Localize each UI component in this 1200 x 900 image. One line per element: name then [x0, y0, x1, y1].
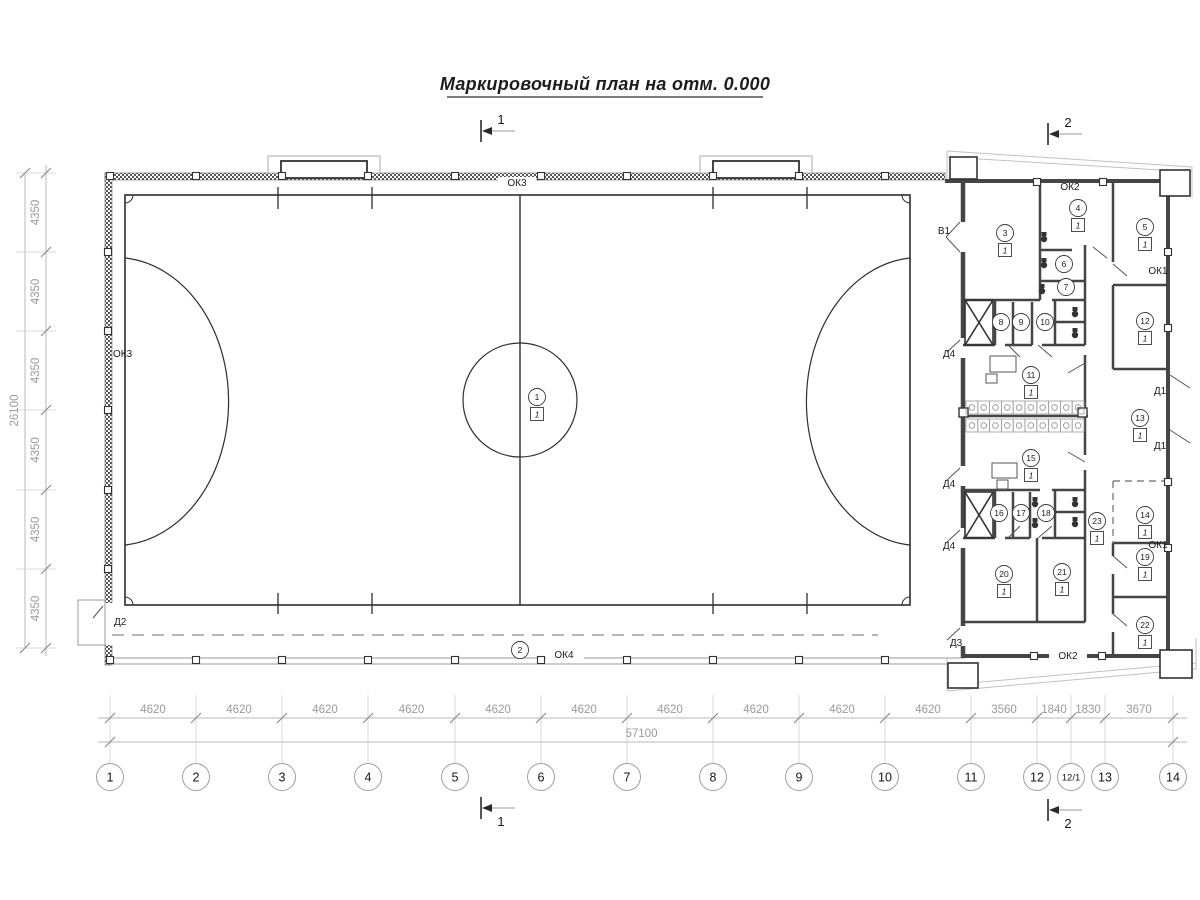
- dim-total-value: 57100: [626, 728, 658, 740]
- dim-value: 4350: [30, 279, 42, 305]
- room-number: 10: [1040, 317, 1050, 327]
- floor-type-mark: 1: [1060, 585, 1065, 595]
- grid-axis-bubble: 13: [1092, 764, 1119, 791]
- floor-type-mark: 1: [1029, 471, 1034, 481]
- room-label: 221: [1137, 617, 1154, 649]
- locker-cell: [1072, 419, 1084, 432]
- locker-cell-mark: [1064, 405, 1070, 411]
- room-label: 8: [993, 314, 1010, 331]
- locker-cell-mark: [969, 423, 975, 429]
- column-marker: [882, 657, 889, 664]
- dim-value: 4350: [30, 437, 42, 463]
- dim-value: 1840: [1041, 704, 1067, 716]
- wall-label-ок4: ОК4: [554, 650, 574, 661]
- grid-axis-number: 12/1: [1062, 773, 1081, 784]
- room-number: 21: [1057, 567, 1067, 577]
- floor-type-mark: 1: [1029, 388, 1034, 398]
- dim-value: 1830: [1075, 704, 1101, 716]
- room-number: 11: [1027, 370, 1036, 380]
- left-window-band: [105, 173, 112, 665]
- locker-cell-mark: [993, 423, 999, 429]
- grid-axis-bubble: 11: [958, 764, 985, 791]
- room-label: 41: [1070, 200, 1087, 232]
- desk: [992, 463, 1017, 478]
- column-marker: [279, 173, 286, 180]
- grid-axis-number: 1: [107, 771, 114, 785]
- section-marker: 1: [481, 797, 515, 829]
- locker-cell-mark: [1005, 405, 1011, 411]
- section-number: 2: [1064, 115, 1071, 130]
- room-number: 6: [1062, 259, 1067, 269]
- column-marker: [624, 657, 631, 664]
- room-number: 16: [994, 508, 1004, 518]
- floor-type-mark: 1: [1003, 246, 1008, 256]
- grid-axis-number: 4: [365, 771, 372, 785]
- locker-cell: [1037, 419, 1049, 432]
- locker-cell-mark: [1040, 405, 1046, 411]
- column-marker: [105, 487, 112, 494]
- room-label: 201: [996, 566, 1013, 598]
- wall-label-ок3: ОК3: [507, 178, 527, 189]
- column-marker: [105, 407, 112, 414]
- dim-value: 4620: [571, 704, 597, 716]
- room-number: 3: [1003, 228, 1008, 238]
- entry-porch-d2: [78, 600, 105, 645]
- locker-cell-mark: [1052, 405, 1058, 411]
- dim-value: 4350: [30, 596, 42, 622]
- room-label: 51: [1137, 219, 1154, 251]
- room-number: 5: [1143, 222, 1148, 232]
- dim-value: 4620: [915, 704, 941, 716]
- floor-type-mark: 1: [1002, 587, 1007, 597]
- dim-value: 4620: [743, 704, 769, 716]
- wall-label-д4: Д4: [943, 479, 956, 490]
- floor-type-mark: 1: [1143, 638, 1148, 648]
- locker-cell: [1001, 419, 1013, 432]
- column-marker: [365, 173, 372, 180]
- column-marker: [796, 173, 803, 180]
- room-label: 7: [1058, 279, 1075, 296]
- room-label: 111: [1023, 367, 1040, 399]
- column-marker: [452, 657, 459, 664]
- column-marker: [1100, 179, 1107, 186]
- grid-axis-bubble: 8: [700, 764, 727, 791]
- dim-value: 4350: [30, 517, 42, 543]
- wall-label-в1: В1: [938, 226, 951, 237]
- room-number: 14: [1140, 510, 1150, 520]
- locker-cell-mark: [993, 405, 999, 411]
- locker-cell-mark: [1040, 423, 1046, 429]
- field-markings: [125, 187, 910, 614]
- wall-label-д1: Д1: [1154, 386, 1167, 397]
- section-number: 2: [1064, 816, 1071, 831]
- room-label: 191: [1137, 549, 1154, 581]
- drawing-title: Маркировочный план на отм. 0.000: [440, 74, 770, 94]
- column-marker: [105, 566, 112, 573]
- locker-cell: [1049, 401, 1061, 414]
- room-label: 131: [1132, 410, 1149, 442]
- grid-axis-number: 3: [279, 771, 286, 785]
- room-number: 12: [1140, 316, 1150, 326]
- room-number: 15: [1026, 453, 1036, 463]
- room-label: 231: [1089, 513, 1106, 545]
- floor-type-mark: 1: [1143, 240, 1148, 250]
- room-label: 18: [1038, 505, 1055, 522]
- floor-plan-canvas: Маркировочный план на отм. 0.000: [0, 0, 1200, 900]
- dim-value: 3560: [991, 704, 1017, 716]
- floor-type-mark: 1: [1095, 534, 1100, 544]
- grid-axis-bubble: 9: [786, 764, 813, 791]
- grid-axis-number: 9: [796, 771, 803, 785]
- wall-label-ок1: ОК1: [1148, 266, 1168, 277]
- column-marker: [710, 657, 717, 664]
- wall-label-д4: Д4: [943, 349, 956, 360]
- room-label: 10: [1037, 314, 1054, 331]
- page-title: Маркировочный план на отм. 0.000: [440, 74, 770, 97]
- room-number: 7: [1064, 282, 1069, 292]
- grid-axis-number: 14: [1166, 771, 1180, 785]
- grid-axis-number: 7: [624, 771, 631, 785]
- column-marker: [1034, 179, 1041, 186]
- room-number: 17: [1016, 508, 1026, 518]
- section-marker: 2: [1048, 799, 1082, 831]
- locker-cell: [966, 419, 978, 432]
- dim-value: 3670: [1126, 704, 1152, 716]
- column-marker: [796, 657, 803, 664]
- section-number: 1: [497, 112, 504, 127]
- locker-cell: [1013, 419, 1025, 432]
- column-marker: [193, 657, 200, 664]
- grid-axis-number: 5: [452, 771, 459, 785]
- room-label: 121: [1137, 313, 1154, 345]
- column-marker: [1165, 249, 1172, 256]
- column-marker: [710, 173, 717, 180]
- locker-cell: [1001, 401, 1013, 414]
- room-number: 13: [1135, 413, 1145, 423]
- locker-cell-mark: [1075, 423, 1081, 429]
- wall-label-ок2: ОК2: [1060, 182, 1080, 193]
- grid-axis-bubble: 5: [442, 764, 469, 791]
- room-number: 18: [1041, 508, 1051, 518]
- floor-type-mark: 1: [1143, 528, 1148, 538]
- column-marker: [107, 657, 114, 664]
- wall-label-ок3: ОК3: [113, 349, 133, 360]
- locker-cell: [1025, 419, 1037, 432]
- grid-axis-bubble: 6: [528, 764, 555, 791]
- locker-cell: [990, 401, 1002, 414]
- grid-axis-bubble: 12: [1024, 764, 1051, 791]
- grid-axis-number: 8: [710, 771, 717, 785]
- grid-axis-number: 12: [1030, 771, 1044, 785]
- grid-axis-bubble: 1: [97, 764, 124, 791]
- column-marker: [452, 173, 459, 180]
- dim-value: 4620: [312, 704, 338, 716]
- locker-cell: [978, 419, 990, 432]
- desk: [990, 356, 1016, 372]
- room-number: 19: [1140, 552, 1150, 562]
- room-label: 151: [1023, 450, 1040, 482]
- locker-cell: [1060, 401, 1072, 414]
- dim-value: 4620: [829, 704, 855, 716]
- grid-axis-bubble: 14: [1160, 764, 1187, 791]
- wall-label-д1: Д1: [1154, 441, 1167, 452]
- locker-cell: [1013, 401, 1025, 414]
- dim-value: 4620: [399, 704, 425, 716]
- grid-axis-bubble: 2: [183, 764, 210, 791]
- column-marker: [193, 173, 200, 180]
- room-label: 211: [1054, 564, 1071, 596]
- locker-cell-mark: [1028, 423, 1034, 429]
- door-swings: [93, 222, 1190, 640]
- column-marker: [1099, 653, 1106, 660]
- column-marker: [538, 173, 545, 180]
- grid-axis-number: 6: [538, 771, 545, 785]
- dim-total-value: 26100: [9, 395, 21, 427]
- column-marker: [365, 657, 372, 664]
- dim-value: 4620: [485, 704, 511, 716]
- floor-type-mark: 1: [1076, 221, 1081, 231]
- grid-axis-bubble: 3: [269, 764, 296, 791]
- dim-value: 4350: [30, 358, 42, 384]
- right-penalty-arc: [806, 258, 910, 545]
- room-label: 9: [1013, 314, 1030, 331]
- locker-cell: [1037, 401, 1049, 414]
- room-number: 9: [1019, 317, 1024, 327]
- column-marker: [624, 173, 631, 180]
- column-marker: [1031, 653, 1038, 660]
- grid-axis-number: 10: [878, 771, 892, 785]
- locker-cell: [1025, 401, 1037, 414]
- column-marker: [1165, 325, 1172, 332]
- column-marker: [279, 657, 286, 664]
- column-marker: [105, 328, 112, 335]
- column-marker: [1165, 479, 1172, 486]
- locker-cell: [1049, 419, 1061, 432]
- column-marker: [882, 173, 889, 180]
- column-marker: [538, 657, 545, 664]
- room-label: 17: [1013, 505, 1030, 522]
- wall-label-д4: Д4: [943, 541, 956, 552]
- locker-cell-mark: [1052, 423, 1058, 429]
- grid-axis-number: 11: [965, 771, 978, 785]
- locker-cell-mark: [969, 405, 975, 411]
- wall-label-д3: Д3: [950, 638, 963, 649]
- locker-cell: [990, 419, 1002, 432]
- room-number: 2: [518, 645, 523, 655]
- locker-cell: [978, 401, 990, 414]
- dim-value: 4620: [657, 704, 683, 716]
- locker-cell-mark: [1064, 423, 1070, 429]
- wall-label-д2: Д2: [114, 617, 127, 628]
- hall-walls: [78, 173, 965, 665]
- locker-cell-mark: [1028, 405, 1034, 411]
- grid-axis-bubble: 4: [355, 764, 382, 791]
- room-label: 16: [991, 505, 1008, 522]
- canopy-outline: [947, 151, 1196, 691]
- wall-label-ок1: ОК1: [1148, 540, 1168, 551]
- locker-cell-mark: [1016, 405, 1022, 411]
- dim-value: 4620: [140, 704, 166, 716]
- grid-axis-bubble: 7: [614, 764, 641, 791]
- section-marker: 2: [1048, 115, 1082, 145]
- locker-cell-mark: [1016, 423, 1022, 429]
- floor-type-mark: 1: [1143, 570, 1148, 580]
- locker-cell: [1060, 419, 1072, 432]
- room-label: 2: [512, 642, 529, 659]
- wall-label-ок2: ОК2: [1058, 651, 1078, 662]
- locker-cell-mark: [981, 405, 987, 411]
- room-number: 22: [1140, 620, 1150, 630]
- left-penalty-arc: [125, 258, 229, 545]
- room-label: 6: [1056, 256, 1073, 273]
- section-marker: 1: [481, 112, 515, 142]
- room-labels-layer: 1123141516789101111211311411511617181912…: [512, 200, 1154, 659]
- room-number: 4: [1076, 203, 1081, 213]
- room-number: 20: [999, 569, 1009, 579]
- grid-axis-bubble: 12/1: [1058, 764, 1085, 791]
- locker-cell-mark: [981, 423, 987, 429]
- grid-axis-number: 2: [193, 771, 200, 785]
- dim-value: 4620: [226, 704, 252, 716]
- floor-type-mark: 1: [1138, 431, 1143, 441]
- column-marker: [105, 249, 112, 256]
- room-label: 11: [529, 389, 546, 421]
- locker-cell-mark: [1005, 423, 1011, 429]
- room-label: 141: [1137, 507, 1154, 539]
- room-number: 1: [535, 392, 540, 402]
- room-number: 8: [999, 317, 1004, 327]
- room-label: 31: [997, 225, 1014, 257]
- column-marker: [107, 173, 114, 180]
- room-number: 23: [1092, 516, 1102, 526]
- grid-axis-bubble: 10: [872, 764, 899, 791]
- floor-type-mark: 1: [535, 410, 540, 420]
- floor-type-mark: 1: [1143, 334, 1148, 344]
- grid-axis-number: 13: [1098, 771, 1112, 785]
- dim-value: 4350: [30, 200, 42, 226]
- section-number: 1: [497, 814, 504, 829]
